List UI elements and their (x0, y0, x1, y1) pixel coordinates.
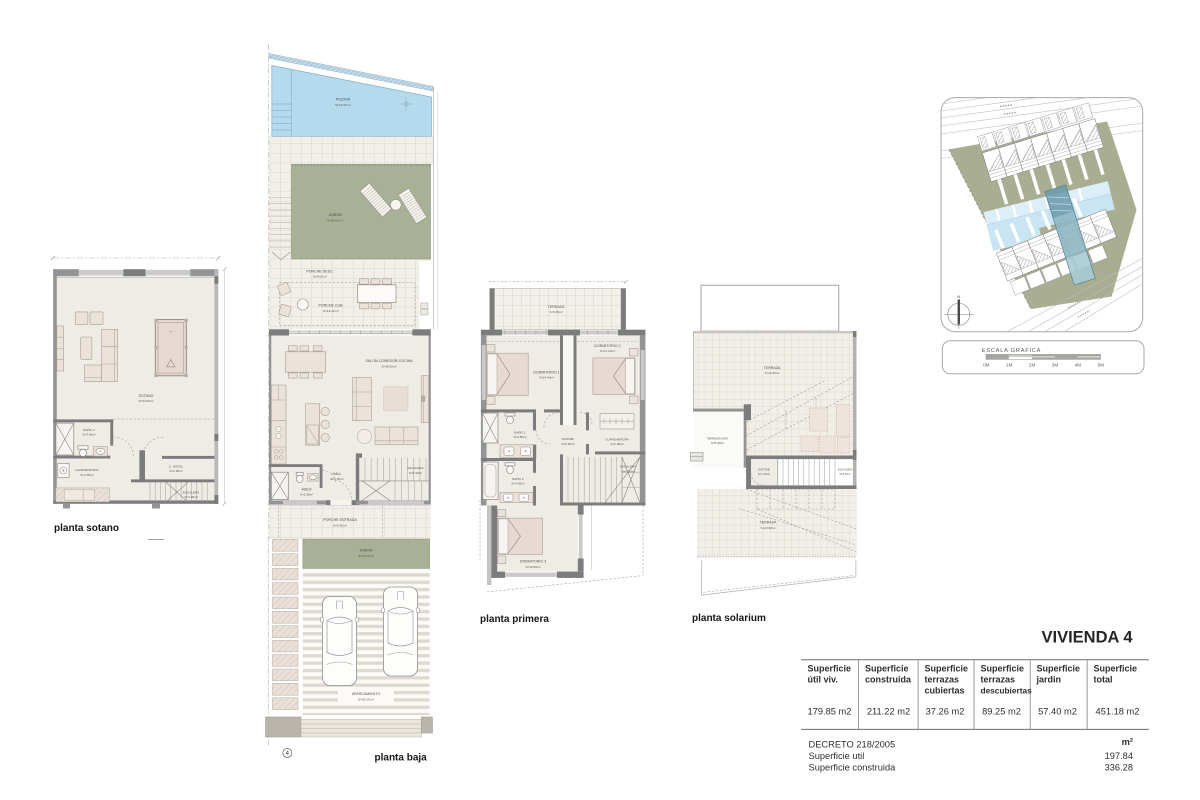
svg-text:DECRETO 218/2005: DECRETO 218/2005 (809, 740, 896, 750)
svg-text:S=2.80m²: S=2.80m² (300, 492, 313, 496)
svg-text:S=38.50m²: S=38.50m² (382, 365, 397, 369)
svg-text:JARDIN: JARDIN (329, 213, 342, 217)
svg-text:PORCHE CUB.: PORCHE CUB. (319, 304, 344, 308)
svg-text:S=2.06m²: S=2.06m² (610, 442, 623, 446)
svg-text:S=58.60 m²: S=58.60 m² (327, 219, 343, 223)
svg-text:179.85 m2: 179.85 m2 (808, 707, 852, 717)
svg-text:ESCALERA: ESCALERA (620, 465, 637, 469)
svg-text:S=52.00m²: S=52.00m² (139, 399, 154, 403)
svg-text:S=4.55m²: S=4.55m² (511, 482, 524, 486)
svg-text:S=14.40m²: S=14.40m² (539, 376, 554, 380)
svg-text:SALON-COMEDOR-COCINA: SALON-COMEDOR-COCINA (365, 359, 413, 363)
svg-text:Superficie: Superficie (1037, 664, 1081, 674)
svg-text:LAVADERO/INST: LAVADERO/INST (75, 468, 99, 472)
svg-text:DISTRIB.: DISTRIB. (562, 437, 575, 441)
svg-text:PORCHE ENTRADA: PORCHE ENTRADA (323, 518, 357, 522)
svg-text:S=5.20m²: S=5.20m² (621, 469, 634, 473)
svg-text:terrazas: terrazas (981, 675, 1016, 685)
svg-text:APARCAMIENTO: APARCAMIENTO (352, 692, 381, 696)
svg-text:ESCALERA: ESCALERA (183, 490, 200, 494)
svg-text:S=9.35 m²: S=9.35 m² (333, 524, 347, 528)
svg-text:planta primera: planta primera (480, 614, 549, 625)
svg-text:Superficie: Superficie (865, 664, 909, 674)
svg-text:TERRAZA: TERRAZA (764, 366, 781, 370)
svg-text:S=4.90m²: S=4.90m² (184, 495, 197, 499)
svg-text:BAÑO 2: BAÑO 2 (512, 476, 523, 481)
svg-text:S=23.90m²: S=23.90m² (761, 526, 776, 530)
svg-text:S=1.05m²: S=1.05m² (758, 472, 770, 476)
svg-text:TERRAZA: TERRAZA (548, 305, 565, 309)
svg-text:Superficie: Superficie (1094, 664, 1138, 674)
svg-text:ESCALERA: ESCALERA (838, 468, 853, 472)
svg-text:S=4.55m²: S=4.55m² (80, 473, 93, 477)
svg-text:ASEO: ASEO (302, 488, 312, 492)
svg-text:DISTRIB: DISTRIB (758, 468, 769, 472)
svg-text:total: total (1094, 675, 1113, 685)
svg-text:S=5.90m²: S=5.90m² (711, 441, 724, 445)
svg-text:SOTANO: SOTANO (139, 394, 154, 398)
svg-text:S=2.50m²: S=2.50m² (169, 469, 182, 473)
svg-text:BAÑO 1: BAÑO 1 (514, 430, 525, 435)
svg-text:S=18.30 m²: S=18.30 m² (335, 103, 351, 107)
svg-text:197.84: 197.84 (1105, 751, 1133, 761)
svg-text:DORMITORIO 3: DORMITORIO 3 (520, 560, 546, 564)
svg-text:planta solarium: planta solarium (692, 613, 766, 624)
svg-text:jardin: jardin (1036, 675, 1062, 685)
svg-text:TERRAZA INST: TERRAZA INST (707, 437, 729, 441)
svg-text:BAÑO 3: BAÑO 3 (83, 427, 94, 432)
svg-text:S=18.00 m²: S=18.00 m² (358, 554, 374, 558)
svg-text:S=32.80m²: S=32.80m² (765, 371, 780, 375)
svg-text:Superficie construida: Superficie construida (809, 763, 897, 773)
svg-text:S=5.20m²: S=5.20m² (561, 442, 574, 446)
svg-text:descubiertas: descubiertas (981, 686, 1033, 696)
svg-text:Superficie: Superficie (808, 664, 852, 674)
svg-text:N: N (957, 294, 960, 299)
svg-text:336.28: 336.28 (1105, 763, 1133, 773)
svg-text:2M: 2M (1029, 363, 1036, 368)
svg-text:PORCHE DESC.: PORCHE DESC. (306, 270, 333, 274)
svg-text:1M: 1M (1006, 363, 1013, 368)
svg-text:DORMITORIO 1: DORMITORIO 1 (533, 371, 559, 375)
svg-text:Superficie: Superficie (981, 664, 1025, 674)
svg-text:JARDIN: JARDIN (360, 549, 373, 553)
svg-text:cubiertas: cubiertas (925, 686, 965, 696)
svg-text:0M: 0M (983, 363, 990, 368)
svg-text:S=4.50m²: S=4.50m² (513, 435, 526, 439)
svg-text:S=10.60m²: S=10.60m² (526, 565, 541, 569)
svg-text:S=2.25m²: S=2.25m² (330, 477, 343, 481)
svg-text:construida: construida (865, 675, 912, 685)
svg-text:ESCALERA: ESCALERA (407, 466, 424, 470)
svg-text:S=5.35m²: S=5.35m² (549, 310, 562, 314)
svg-text:DORMITORIO 2: DORMITORIO 2 (594, 344, 620, 348)
svg-text:PISCINA: PISCINA (336, 98, 351, 102)
svg-text:451.18 m2: 451.18 m2 (1096, 707, 1140, 717)
svg-text:Superficie: Superficie (925, 664, 969, 674)
svg-text:S=5.30m²: S=5.30m² (409, 471, 422, 475)
svg-text:ESCALA GRAFICA: ESCALA GRAFICA (982, 348, 1041, 354)
svg-text:terrazas: terrazas (925, 675, 960, 685)
svg-text:HALL: HALL (333, 472, 342, 476)
svg-text:S=11.13m²: S=11.13m² (600, 349, 615, 353)
svg-text:C. INSTAL: C. INSTAL (169, 464, 184, 468)
svg-text:89.25 m2: 89.25 m2 (982, 707, 1021, 717)
svg-text:S=3.00m²: S=3.00m² (82, 433, 95, 437)
svg-text:VIVIENDA 4: VIVIENDA 4 (1042, 629, 1134, 647)
svg-text:CUARDARROPA: CUARDARROPA (605, 438, 629, 442)
svg-text:planta sotano: planta sotano (54, 523, 119, 534)
svg-text:57.40 m2: 57.40 m2 (1038, 707, 1077, 717)
svg-text:4M: 4M (1075, 363, 1082, 368)
svg-text:m²: m² (1122, 737, 1133, 747)
svg-text:S=12.00 m²: S=12.00 m² (323, 309, 339, 313)
svg-text:útil viv.: útil viv. (808, 675, 838, 685)
svg-text:S=35.20 m²: S=35.20 m² (358, 698, 374, 702)
svg-text:3M: 3M (1052, 363, 1059, 368)
svg-text:5M: 5M (1098, 363, 1105, 368)
svg-text:planta baja: planta baja (375, 753, 428, 764)
svg-text:211.22 m2: 211.22 m2 (867, 707, 910, 717)
svg-text:S=5.30m²: S=5.30m² (839, 472, 850, 476)
svg-text:S=9.60 m²: S=9.60 m² (313, 275, 327, 279)
svg-text:TERRAZA: TERRAZA (760, 521, 777, 525)
svg-text:Superficie util: Superficie util (809, 751, 865, 761)
svg-text:37.26 m2: 37.26 m2 (926, 707, 965, 717)
